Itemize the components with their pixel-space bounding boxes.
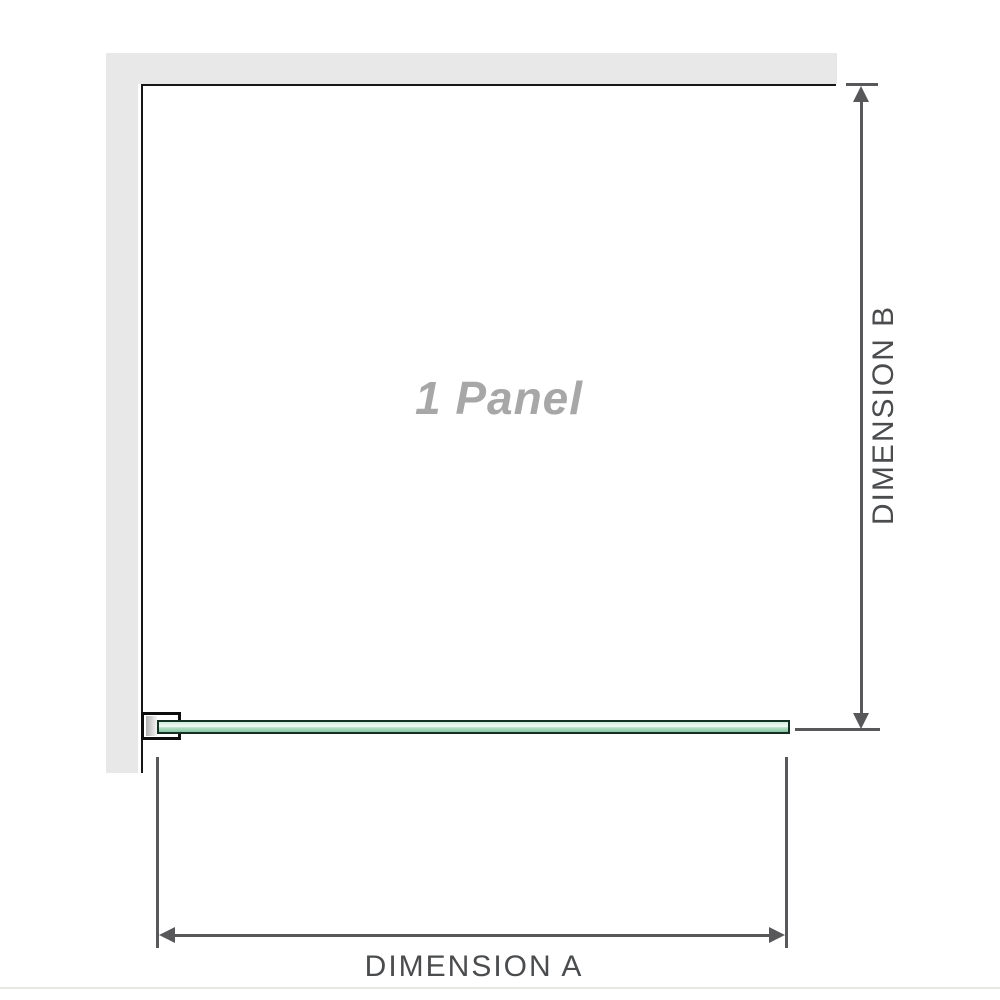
dimension-b-line: [860, 98, 863, 718]
panel-top-edge: [141, 84, 836, 86]
dimension-a-extension-left: [156, 757, 159, 948]
arrow-left-icon: [159, 927, 175, 943]
arrow-up-icon: [853, 86, 869, 102]
dimension-b-label: DIMENSION B: [867, 305, 901, 525]
dimension-a-label: DIMENSION A: [365, 950, 584, 984]
bracket-pad: [146, 716, 157, 736]
dimension-a-extension-right: [785, 757, 788, 948]
panel-label: 1 Panel: [415, 371, 583, 425]
dimension-a-line: [170, 934, 775, 937]
wall-left: [106, 53, 138, 773]
wall-top: [106, 53, 837, 84]
diagram-canvas: 1 Panel DIMENSION B DIMENSION A: [0, 0, 1000, 1000]
page-rule: [0, 987, 1000, 989]
arrow-down-icon: [853, 713, 869, 729]
arrow-right-icon: [769, 927, 785, 943]
glass-panel: [157, 720, 790, 734]
panel-left-edge: [141, 84, 143, 773]
